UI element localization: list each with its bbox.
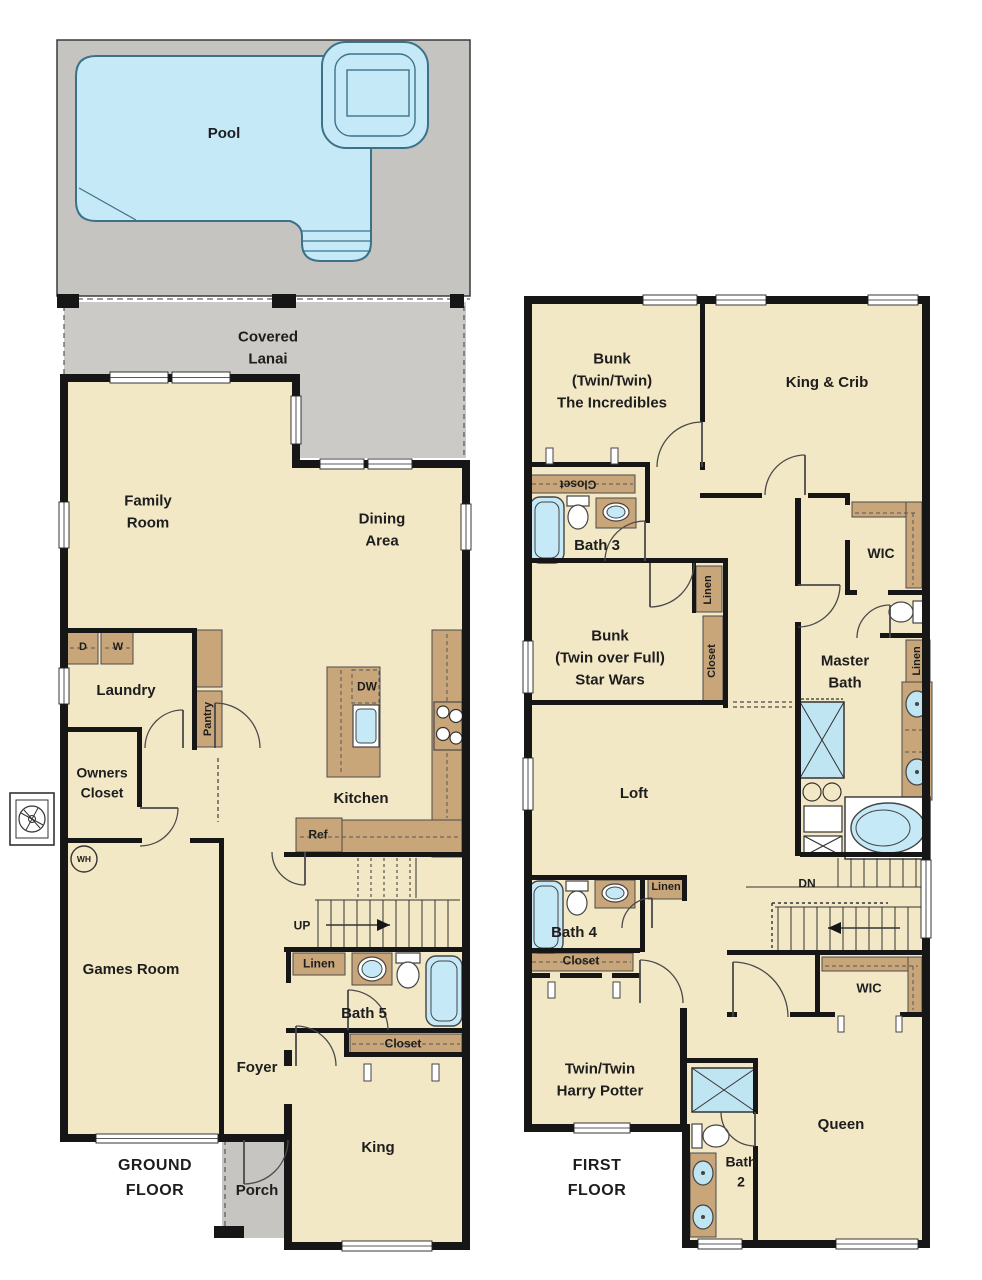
range-burners <box>434 702 463 750</box>
floor-plan-drawing <box>0 0 982 1280</box>
master-shower <box>800 699 844 778</box>
ac-unit-icon <box>10 793 54 845</box>
master-toilet <box>889 601 923 623</box>
island-sink <box>353 705 379 747</box>
garden-tub <box>845 797 930 859</box>
spa <box>322 42 428 148</box>
water-heater-icon <box>71 846 97 872</box>
ground-floor-footprint <box>64 378 466 1246</box>
porch <box>214 1138 290 1238</box>
floor-plan-canvas: Pool Covered Lanai Family Room Dining Ar… <box>0 0 982 1280</box>
